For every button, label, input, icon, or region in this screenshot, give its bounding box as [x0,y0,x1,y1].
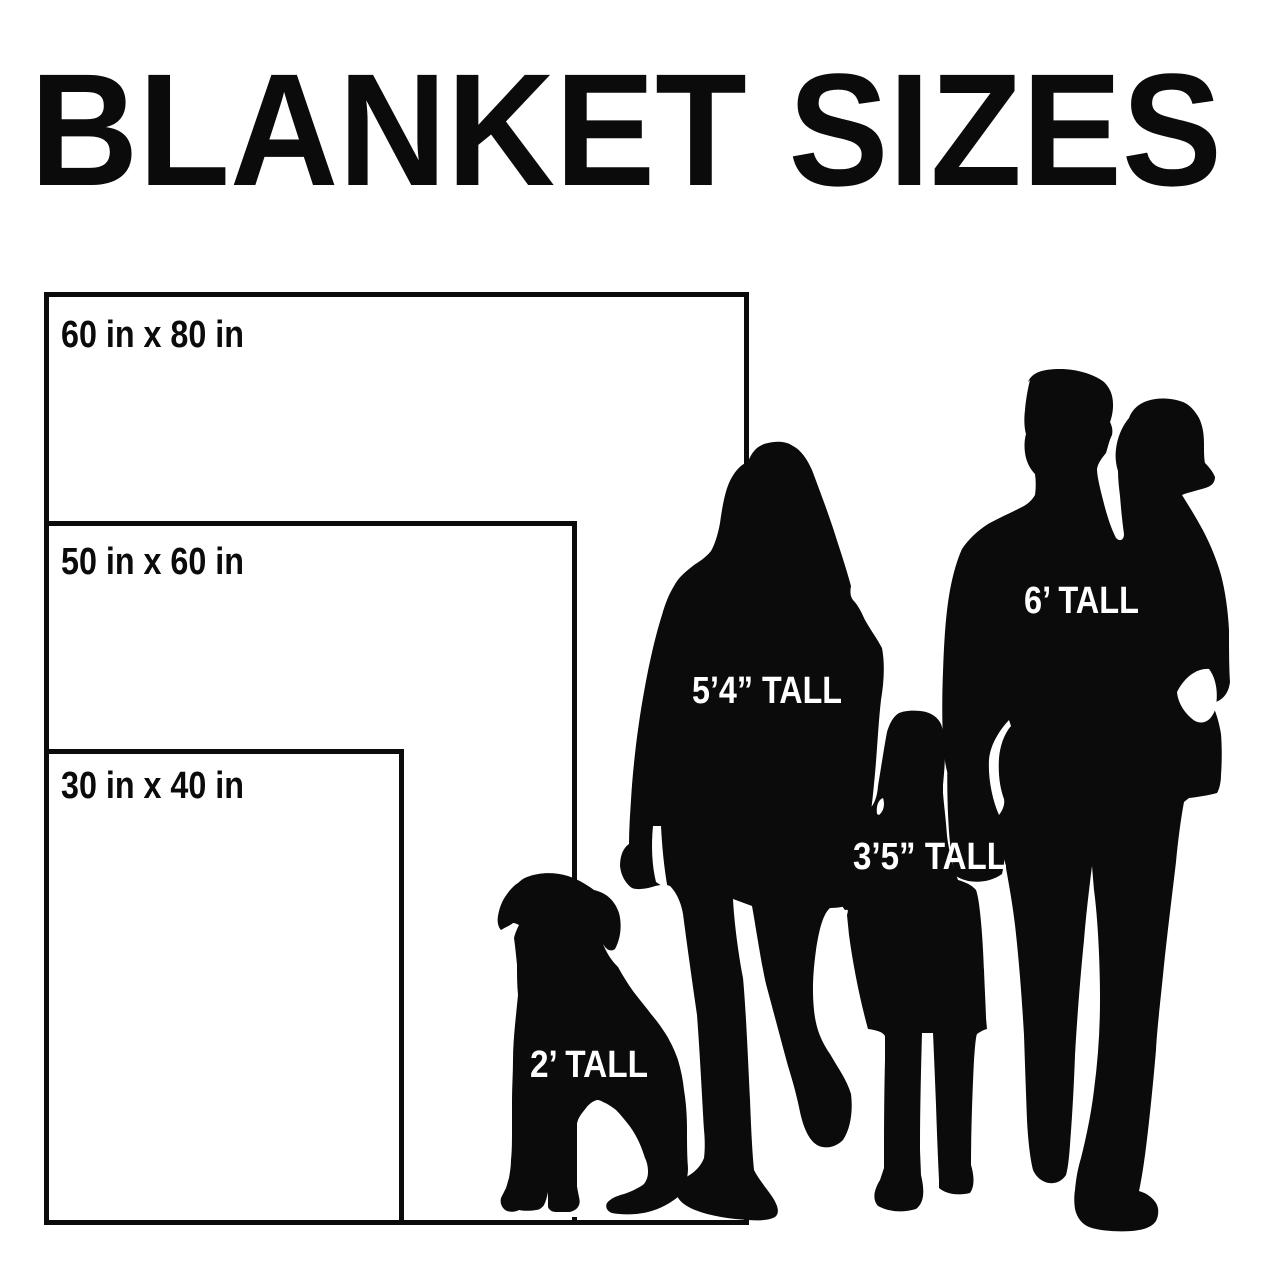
svg-text:3’5” TALL: 3’5” TALL [853,836,1007,878]
svg-text:6’ TALL: 6’ TALL [1024,580,1139,622]
svg-text:30 in x 40 in: 30 in x 40 in [61,765,244,807]
svg-text:5’4” TALL: 5’4” TALL [692,670,842,712]
svg-text:BLANKET SIZES: BLANKET SIZES [30,40,1222,219]
svg-text:50 in x 60 in: 50 in x 60 in [61,541,244,583]
svg-text:60 in x 80 in: 60 in x 80 in [61,314,244,356]
svg-text:2’ TALL: 2’ TALL [530,1044,648,1086]
